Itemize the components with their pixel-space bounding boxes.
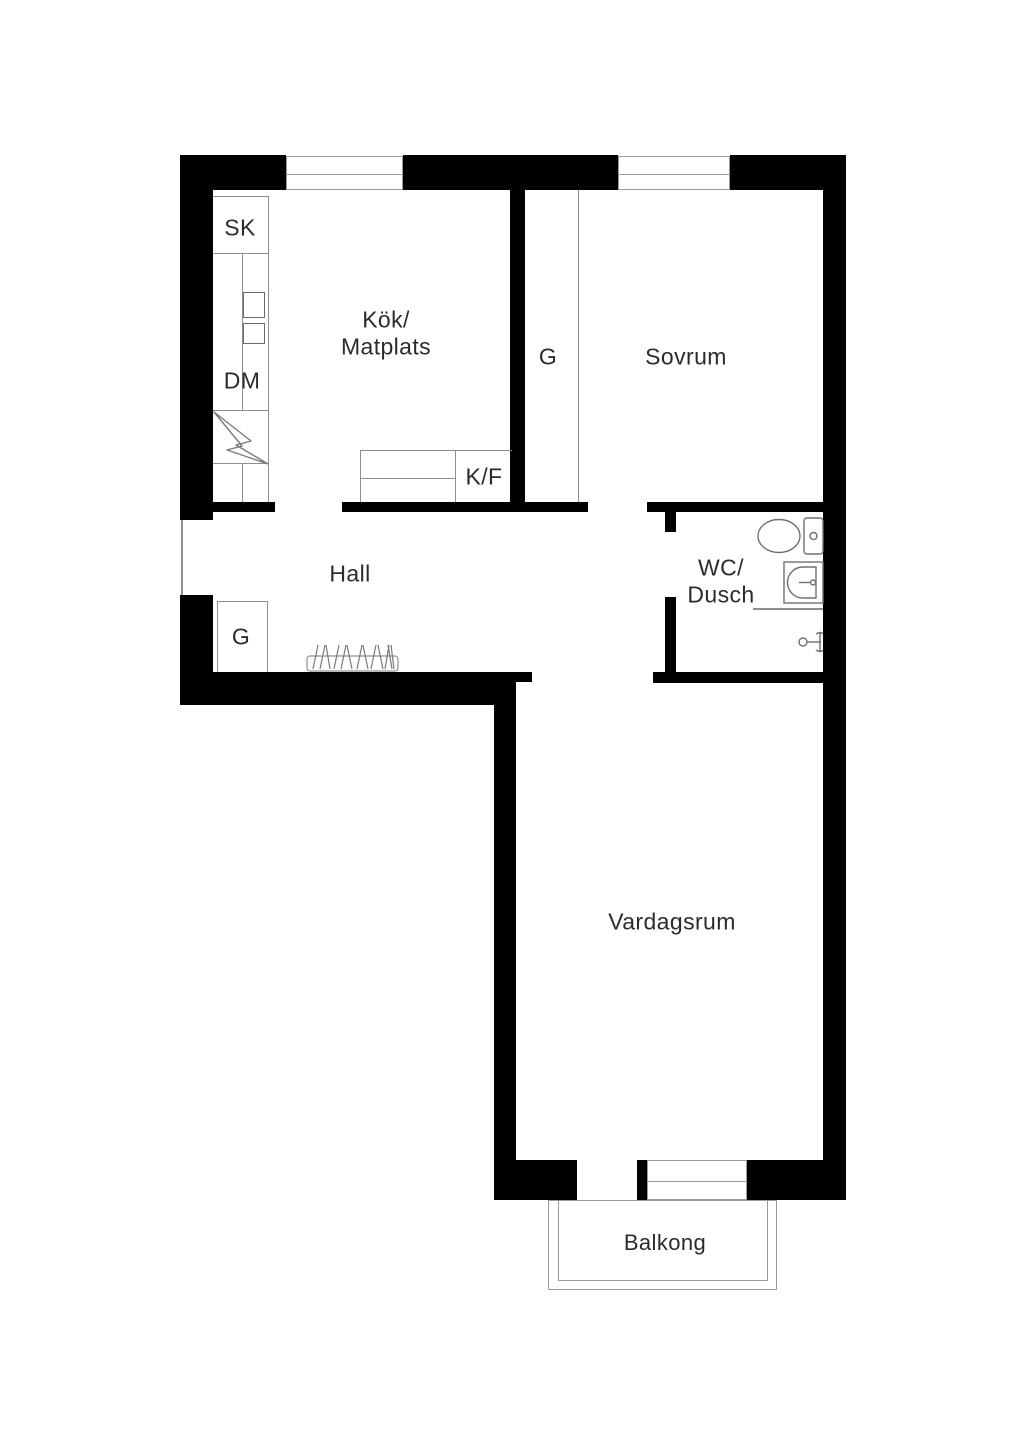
cabinet-label-sk: SK [224, 215, 255, 242]
fixtures-layer [0, 0, 1024, 1449]
room-label-bedroom: Sovrum [645, 344, 727, 371]
room-label-hall: Hall [329, 561, 370, 588]
cabinet-label-kf: K/F [466, 464, 503, 491]
shower-mixer-icon [799, 633, 823, 652]
cabinet-label-dm: DM [224, 368, 261, 395]
room-label-kitchen: Kök/ Matplats [341, 306, 431, 359]
lightning-icon [214, 412, 268, 464]
coat-rack-icon [307, 645, 398, 671]
floor-plan: SK Kök/ Matplats DM K/F G Sovrum Hall G … [0, 0, 1024, 1449]
sink-icon [784, 562, 823, 603]
wardrobe-label-hall: G [232, 624, 250, 651]
room-label-kitchen-line1: Kök/ [341, 306, 431, 333]
room-label-wc-line1: WC/ [687, 554, 754, 581]
room-label-kitchen-line2: Matplats [341, 333, 431, 360]
toilet-icon [758, 518, 823, 554]
room-label-wc: WC/ Dusch [687, 554, 754, 607]
wardrobe-label-bedroom: G [539, 344, 557, 371]
room-label-wc-line2: Dusch [687, 581, 754, 608]
room-label-balcony: Balkong [624, 1230, 706, 1256]
room-label-living: Vardagsrum [608, 909, 736, 936]
